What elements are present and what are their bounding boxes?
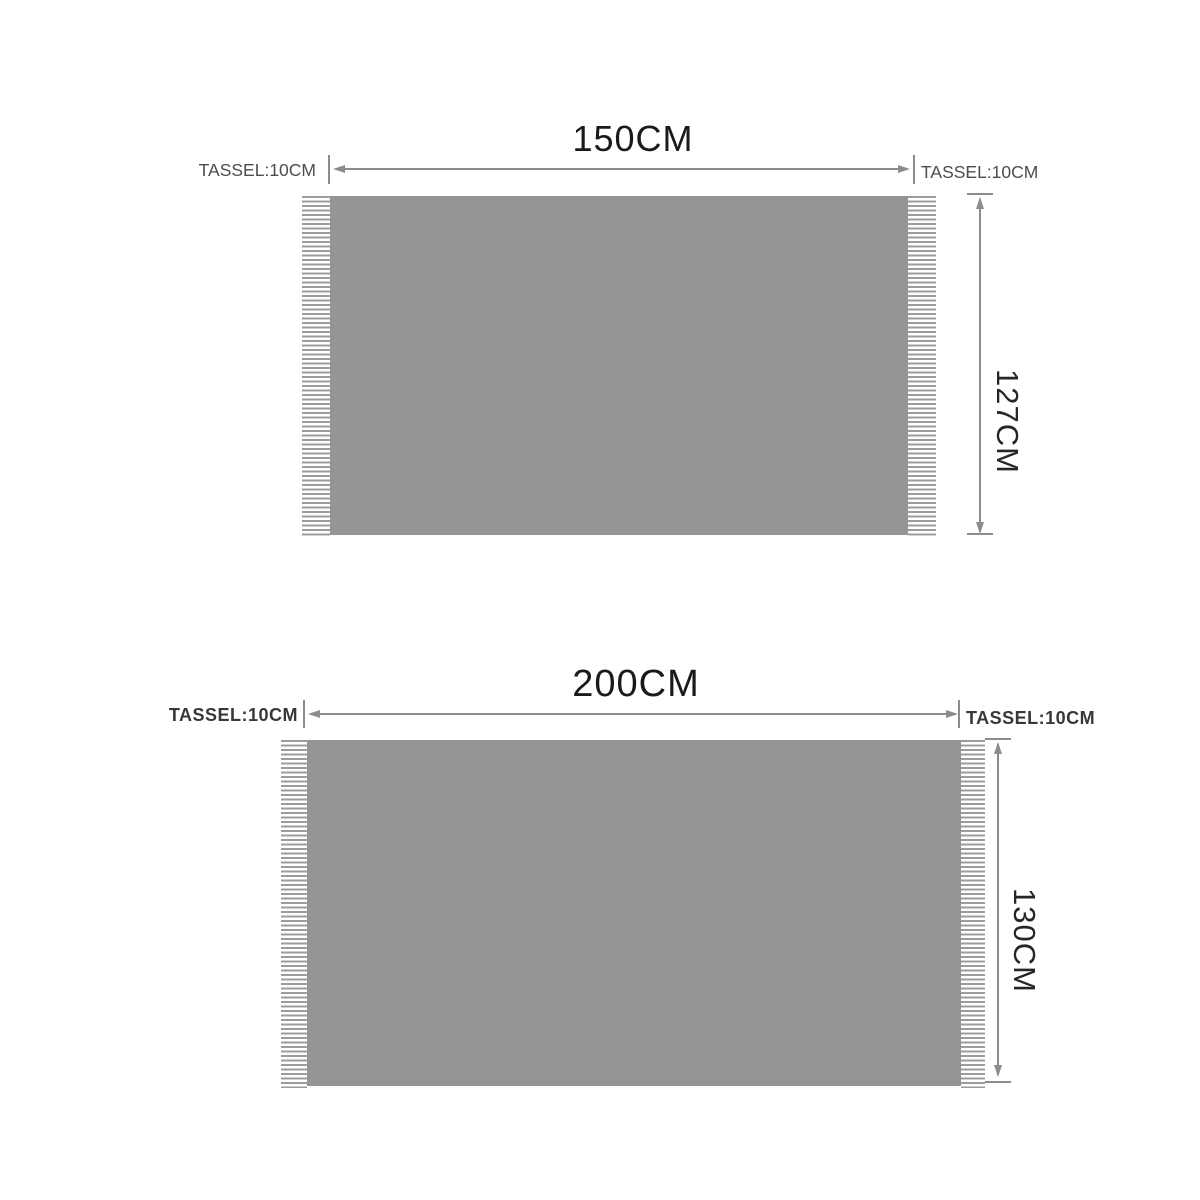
width-dimension-line — [333, 161, 910, 177]
arrowhead-down-icon — [994, 1065, 1002, 1077]
dimension-line — [997, 744, 999, 1075]
fabric-rectangle — [330, 196, 908, 535]
tassel-fringe-left — [302, 196, 330, 538]
tassel-right-label: TASSEL:10CM — [921, 162, 1067, 182]
height-dimension-line — [971, 196, 989, 535]
dimension-cap-top — [967, 193, 993, 195]
dimension-line — [317, 713, 949, 715]
tassel-left-label: TASSEL:10CM — [170, 160, 316, 180]
tassel-fringe-right — [961, 740, 985, 1088]
tassel-fringe-left — [281, 740, 307, 1088]
arrowhead-up-icon — [976, 197, 984, 209]
arrowhead-left-icon — [308, 710, 320, 718]
arrowhead-right-icon — [946, 710, 958, 718]
width-dimension-label: 200CM — [486, 662, 786, 706]
height-dimension-label: 130CM — [1008, 888, 1040, 988]
dimension-tick-right — [958, 700, 960, 728]
dimension-cap-bottom — [967, 533, 993, 535]
tassel-fringe-right — [908, 196, 936, 538]
tassel-right-label: TASSEL:10CM — [966, 708, 1116, 728]
height-dimension-label: 127CM — [991, 369, 1023, 469]
arrowhead-right-icon — [898, 165, 910, 173]
arrowhead-up-icon — [994, 742, 1002, 754]
dimension-tick-right — [913, 155, 915, 184]
dimension-cap-top — [985, 738, 1011, 740]
dimension-cap-bottom — [985, 1081, 1011, 1083]
product-size-diagram-canvas: 150CM TASSEL:10CM TASSEL:10CM 127CM 200C… — [0, 0, 1200, 1200]
dimension-line — [342, 168, 901, 170]
tassel-left-label: TASSEL:10CM — [152, 705, 298, 725]
arrowhead-left-icon — [333, 165, 345, 173]
dimension-line — [979, 199, 981, 532]
fabric-rectangle — [307, 740, 961, 1086]
dimension-tick-left — [328, 155, 330, 184]
dimension-tick-left — [303, 700, 305, 728]
width-dimension-label: 150CM — [483, 118, 783, 160]
height-dimension-line — [989, 741, 1007, 1078]
width-dimension-line — [308, 706, 958, 722]
